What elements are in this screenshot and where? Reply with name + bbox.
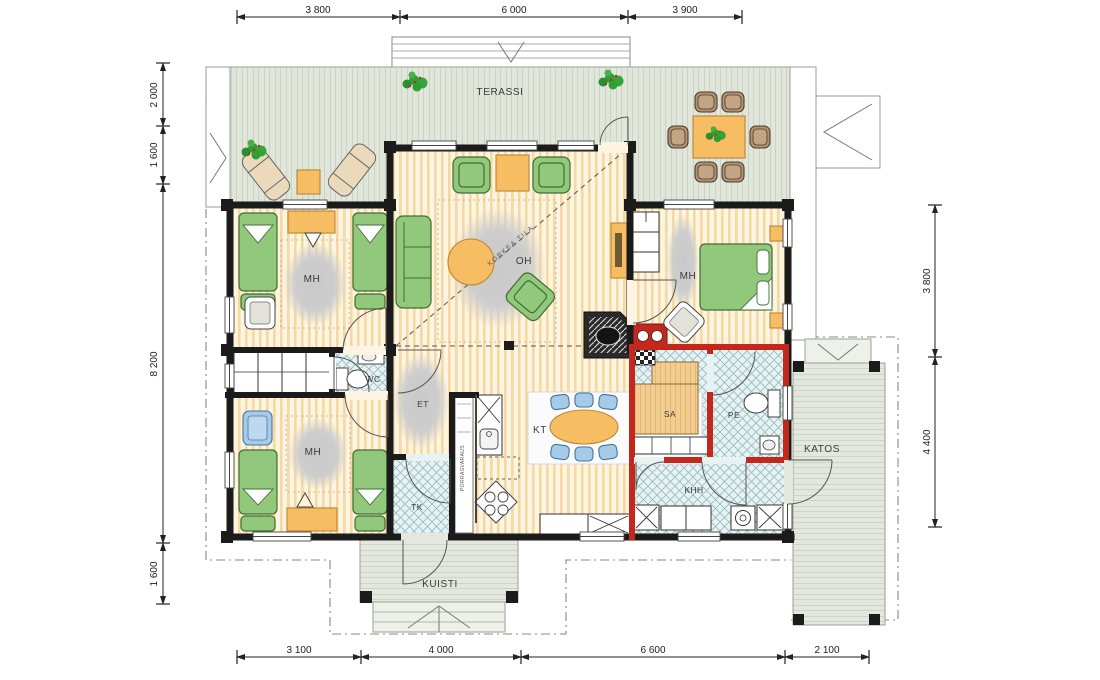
- floor-plan-canvas: TERASSI MH MH MH OH ET WC KT TK SA PE KH…: [0, 0, 1100, 680]
- annotation-porrasvaraus: PORRASVARAUS: [460, 445, 466, 491]
- room-label-mh-top-left: MH: [304, 274, 321, 285]
- sauna-heater-icon: [635, 350, 655, 365]
- side-table: [297, 170, 320, 194]
- room-label-mh-right: MH: [680, 271, 697, 282]
- floor-plan-page: TERASSI MH MH MH OH ET WC KT TK SA PE KH…: [0, 0, 1100, 680]
- room-label-wc: WC: [366, 374, 381, 384]
- sofa: [396, 216, 431, 308]
- dim-left-4: 1 600: [149, 561, 160, 586]
- sink-icon: [760, 436, 779, 454]
- desk: [288, 211, 335, 233]
- dining-set: [550, 393, 618, 461]
- toilet-icon: [336, 368, 369, 390]
- bed-single: [239, 213, 277, 310]
- closets: [234, 352, 330, 393]
- dim-bottom-4: 2 100: [814, 645, 839, 656]
- wardrobe: [633, 212, 659, 272]
- coffee-table: [496, 155, 529, 191]
- dim-right-1: 3 800: [922, 268, 933, 293]
- room-label-oh: OH: [516, 256, 532, 267]
- desk: [287, 508, 337, 531]
- dim-top-1: 3 800: [305, 5, 330, 16]
- armchair: [245, 297, 275, 329]
- room-label-et: ET: [417, 399, 429, 409]
- room-label-tk: TK: [411, 502, 423, 512]
- dim-left-3: 8 200: [149, 351, 160, 376]
- utility-counter: [634, 505, 783, 530]
- washing-machine-icon: [731, 506, 755, 530]
- room-label-khh: KHH: [684, 485, 703, 495]
- bed-single: [353, 450, 387, 531]
- bed-single: [353, 213, 387, 309]
- room-label-pe: PE: [728, 410, 740, 420]
- dining-table: [550, 410, 618, 444]
- bed-double: [700, 244, 772, 310]
- room-label-kuisti: KUISTI: [422, 579, 458, 590]
- carport-deck-katos: [793, 339, 885, 625]
- dim-right-2: 4 400: [922, 429, 933, 454]
- dim-top-2: 6 000: [501, 5, 526, 16]
- dim-bottom-1: 3 100: [286, 645, 311, 656]
- armchair: [243, 411, 272, 445]
- room-label-sa: SA: [664, 409, 676, 419]
- dim-bottom-3: 6 600: [640, 645, 665, 656]
- room-label-katos: KATOS: [804, 444, 840, 455]
- room-label-terassi: TERASSI: [477, 87, 524, 98]
- dim-top-3: 3 900: [672, 5, 697, 16]
- room-label-kt: KT: [533, 425, 547, 436]
- bed-single: [239, 450, 277, 531]
- dim-bottom-2: 4 000: [428, 645, 453, 656]
- dim-left-1: 2 000: [149, 82, 160, 107]
- dim-left-2: 1 600: [149, 142, 160, 167]
- roof-canopy-top: [392, 37, 630, 67]
- room-label-mh-bottom-left: MH: [305, 447, 322, 458]
- tv-bench: [611, 223, 627, 278]
